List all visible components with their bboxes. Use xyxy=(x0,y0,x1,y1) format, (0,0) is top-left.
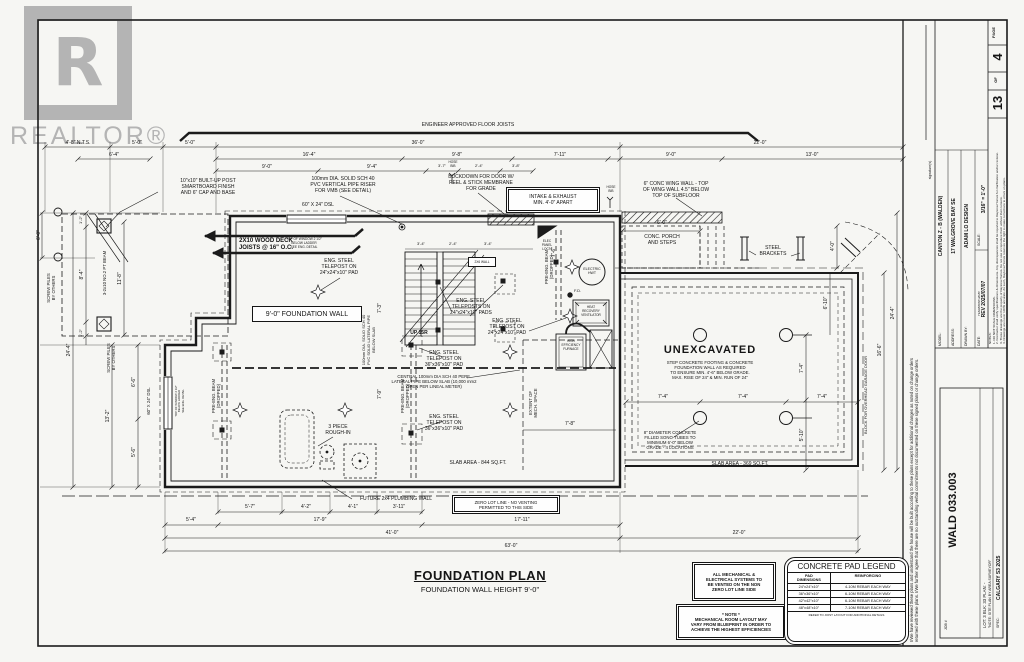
general-notes: NOTES: 1. DO NOT SCALE DIMENSIONS. 2. Co… xyxy=(989,122,1007,344)
legend-cell: 7-10M REBAR EACH WAY xyxy=(831,605,905,611)
dim-label: 5'-4" xyxy=(171,517,211,523)
dim-label: 7'-4" xyxy=(802,394,842,400)
wall-2x6-label: 2X6 WALL xyxy=(474,260,489,264)
foundation-wall-label: 9'-0" FOUNDATION WALL xyxy=(266,311,348,318)
drawn-by-label: DRAWN BY: xyxy=(964,302,968,346)
foundation-wall-box: 9'-0" FOUNDATION WALL xyxy=(252,306,362,322)
dim-label: 7'-8" xyxy=(550,421,590,427)
legend-col2-header: REINFORCING xyxy=(831,573,905,583)
dim-label: 6'-6" xyxy=(131,345,137,419)
sono-tubes-note: 8" DIAMETER CONCRETE FILLED SONO-TUBES T… xyxy=(628,430,712,451)
dim-label: 1'-2" xyxy=(79,323,84,343)
dim-label: 5'-10" xyxy=(799,403,805,467)
window-note-top: TOP OF WINDOW 2 1/2" BELOW LADDER SEE EN… xyxy=(268,238,340,250)
mech-note-inner: * NOTE * MECHANICAL ROOM LAYOUT MAY VARY… xyxy=(678,606,784,638)
dim-label: 16'-4" xyxy=(289,152,329,158)
lot-blk-plan: LOT: 3 BLK: 33 PLAN: - xyxy=(982,393,987,628)
rough-in-note: 3 PIECE ROUGH-IN xyxy=(314,424,362,436)
lateral-pipe-note: 100mm DIA. SOLID SCH 40 PVC SOLID LATERA… xyxy=(362,300,376,380)
built-up-post-note: 10"x10" BUILT-UP POST SMARTBOARD FINISH … xyxy=(160,178,256,196)
dim-label: 4'-0" xyxy=(830,226,836,266)
dim-label: 7'-11" xyxy=(540,152,580,158)
furnace-label: HIGH EFFICIENCY FURNACE xyxy=(557,340,585,352)
zero-lot-note: ZERO LOT LINE - NO VENTING PERMITTED TO … xyxy=(454,497,558,512)
dim-label: 7'-4" xyxy=(723,394,763,400)
page-of-label: OF xyxy=(993,72,998,88)
wing-wall-note: 6" CONC WING WALL - TOP OF WING WALL 4.5… xyxy=(620,181,732,199)
step-footing-note: STEP CONCRETE FOOTING & CONCRETE FOUNDAT… xyxy=(636,360,784,381)
model-label: MODEL: xyxy=(938,302,942,346)
unexcavated-label: UNEXCAVATED xyxy=(645,344,775,357)
dim-label: 5'-6" xyxy=(131,419,137,485)
scale-value: 3/16" = 1'-0" xyxy=(981,156,987,242)
dim-label: 13'-0" xyxy=(792,152,832,158)
slab-area-main: SLAB AREA - 844 SQ.FT. xyxy=(428,460,528,466)
job-number: WALD 033.003 xyxy=(947,395,959,625)
steel-brackets-note: STEEL BRACKETS xyxy=(751,245,795,257)
dim-label: 22'-0" xyxy=(740,140,780,146)
rough-in-fixtures xyxy=(280,410,376,478)
beam-note: PRE-ENG. BEAM (DROPPED) xyxy=(400,360,410,432)
dim-label: 7'-6" xyxy=(551,224,557,280)
dim-label: 11'-8" xyxy=(117,222,123,335)
teleposts-24-note: ENG. STEEL TELEPOSTS ON 24"x24"x10" PADS xyxy=(430,298,512,316)
screw-piles-note: SCREW PILES BY OTHERS xyxy=(46,264,56,312)
spec-label: SPEC: xyxy=(996,604,1000,628)
dim-label: 2'-4" xyxy=(464,164,494,169)
dim-label: 17'-11" xyxy=(501,517,543,523)
dim-label: 4'-8" N.T.S. xyxy=(57,140,99,146)
up-15r-label: UP 15R xyxy=(404,330,434,336)
dim-label: 9'-0" xyxy=(247,164,287,170)
legend-cell: 6-10M REBAR EACH WAY xyxy=(831,598,905,604)
window-note-left: TOP OF WINDOW 2 1/2" BELOW LADDER SEE EN… xyxy=(175,372,185,430)
dim-label: 6'-0" xyxy=(36,214,42,256)
dim-label: 17'-9" xyxy=(300,517,340,523)
dim-label: 7'-9" xyxy=(377,366,383,422)
legend-cell: 6-10M REBAR EACH WAY xyxy=(831,591,905,597)
disclaimer-text: I/We have reviewed these plans and under… xyxy=(909,342,920,642)
telepost-24-note: ENG. STEEL TELEPOST ON 24"x24"x10" PAD xyxy=(468,318,546,336)
porch-dim-label: 6'-0" xyxy=(646,220,678,226)
dim-label: 9'-8" xyxy=(437,152,477,158)
legend-row: 36"x36"x10"6-10M REBAR EACH WAY xyxy=(788,591,905,598)
wall-2x6-box: 2X6 WALL xyxy=(468,257,496,267)
dim-label: 7'-4" xyxy=(643,394,683,400)
dim-label: 3'-4" xyxy=(478,242,498,247)
dim-label: 6'-10" xyxy=(823,274,829,332)
dim-label: 9'-0" xyxy=(651,152,691,158)
dsl-left-label: 60" X 24" DSL xyxy=(146,374,151,428)
dim-label: 24'-4" xyxy=(66,213,72,487)
drawing-title: FOUNDATION PLAN xyxy=(395,568,565,584)
concrete-pad-legend: CONCRETE PAD LEGEND PAD DIMENSIONSREINFO… xyxy=(784,557,909,645)
hatched-elements xyxy=(488,212,722,225)
dim-label: 5'-0" xyxy=(117,140,157,146)
pvc-riser-note: 100mm DIA. SOLID SCH 40 PVC VERTICAL PIP… xyxy=(288,176,398,194)
telepost-36-note: ENG. STEEL TELEPOST ON 36"x36"x10" PAD xyxy=(405,350,483,368)
floor-drain-label: F.D. xyxy=(574,289,590,294)
blueprint-sheet: R REALTOR® xyxy=(0,0,1024,662)
date-value: REV 2025/07/07 xyxy=(981,254,987,344)
mech-note-box: * NOTE * MECHANICAL ROOM LAYOUT MAY VARY… xyxy=(676,604,786,640)
hose-bib-label: HOSE BIB xyxy=(600,186,622,194)
legend-cell: 48"x48"x10" xyxy=(788,605,831,611)
legend-cell: 4-10M REBAR EACH WAY xyxy=(831,584,905,590)
dim-label: 1'-2" xyxy=(79,211,84,229)
extent-mech-note: EXTENT OF MECH. SPACE xyxy=(528,372,538,434)
dim-label: 7'-3" xyxy=(377,280,383,336)
legend-row: 48"x48"x10"7-10M REBAR EACH WAY xyxy=(788,605,905,612)
legend-cell: 24"x24"x10" xyxy=(788,584,831,590)
legend-footer: REFER TO JOIST LAYOUT FOR ADDITIONAL DET… xyxy=(788,612,905,618)
model-value: CANYON Z - B (WALDEN) xyxy=(938,152,944,300)
legend-row: 24"x24"x10"4-10M REBAR EACH WAY xyxy=(788,584,905,591)
legend-title: CONCRETE PAD LEGEND xyxy=(788,561,905,573)
dim-label: 5'-7" xyxy=(230,504,270,510)
page-number: 4 xyxy=(990,45,1005,69)
porch-steps xyxy=(622,226,760,268)
legend-col1-header: PAD DIMENSIONS xyxy=(788,573,831,583)
joist-span-arrow xyxy=(180,133,758,141)
slab-area-garage: SLAB AREA - 369 SQ.FT. xyxy=(695,461,785,467)
vent-note: ALL MECHANICAL & ELECTRICAL SYSTEMS TO B… xyxy=(694,564,774,599)
dim-label: 8'-4" xyxy=(79,229,85,320)
porch-note: CONC. PORCH AND STEPS xyxy=(632,234,692,246)
spec-value: CALGARY S3 2025 xyxy=(996,400,1002,600)
dim-label: 9'-4" xyxy=(352,164,392,170)
dim-label: 2'-4" xyxy=(443,242,463,247)
future-wall-note: FUTURE 2x4 PLUMBING WALL xyxy=(340,496,452,502)
drawing-subtitle: FOUNDATION WALL HEIGHT 9'-0" xyxy=(395,585,565,594)
dim-label: 3'-4" xyxy=(411,242,431,247)
telepost-36-note: ENG. STEEL TELEPOST ON 36"x36"x10" PAD xyxy=(405,414,483,432)
dim-label: 16'-6" xyxy=(877,280,883,420)
intake-exhaust-box: INTAKE & EXHAUST MIN. 4'-0" APART xyxy=(506,187,600,213)
dim-label: 3'-11" xyxy=(379,504,419,510)
hrv-label: HEAT RECOVERY VENTILATOR xyxy=(572,306,610,318)
dim-label: 36'-0" xyxy=(398,140,438,146)
address-label: ADDRESS: xyxy=(951,302,955,346)
dim-label: 3'-7" xyxy=(427,164,457,169)
dim-label: 3'-8" xyxy=(501,164,531,169)
site-plan-note: "NOTE: SITE PLAN BY AREA SURVEYOR" xyxy=(988,393,992,628)
address-value: 17 WALGROVE BAY SE xyxy=(951,152,957,300)
dim-label: 24'-4" xyxy=(890,218,896,408)
drawn-by-value: ADAM LO DESIGN xyxy=(964,152,970,300)
zero-lot-box: ZERO LOT LINE - NO VENTING PERMITTED TO … xyxy=(452,495,560,514)
page-label: PAGE xyxy=(991,22,996,43)
legend-cell: 42"x42"x10" xyxy=(788,598,831,604)
dim-label: 41'-0" xyxy=(372,530,412,536)
dim-label: 13'-2" xyxy=(105,345,111,487)
dim-label: 4'-2" xyxy=(286,504,326,510)
dim-label: 22'-0" xyxy=(719,530,759,536)
dsl-top-label: 60" X 24" DSL xyxy=(288,202,348,208)
intake-exhaust-note: INTAKE & EXHAUST MIN. 4'-0" APART xyxy=(508,189,598,211)
mech-note-body: MECHANICAL ROOM LAYOUT MAY VARY FROM BLU… xyxy=(691,617,771,632)
pt-beam-note: 3-2x10 NO.2 PT BEAM xyxy=(102,241,107,305)
block-garage-door-note: BLOCK FOR OVERHEAD GARAGE DOOR xyxy=(864,320,869,470)
vent-note-box: ALL MECHANICAL & ELECTRICAL SYSTEMS TO B… xyxy=(692,562,776,601)
signature-label: signature(s) xyxy=(928,150,932,190)
electric-hwt-label: ELECTRIC HWT xyxy=(578,267,606,275)
beam-note: PRE-ENG. BEAM (DROPPED) xyxy=(211,360,221,432)
dim-label: 63'-0" xyxy=(491,543,531,549)
joist-span-note: ENGINEER APPROVED FLOOR JOISTS xyxy=(388,122,548,128)
dim-label: 4'-1" xyxy=(333,504,373,510)
legend-row: 42"x42"x10"6-10M REBAR EACH WAY xyxy=(788,598,905,605)
telepost-24-note: ENG. STEEL TELEPOST ON 24"x24"x10" PAD xyxy=(300,258,378,276)
dim-label: 7'-4" xyxy=(799,338,805,398)
legend-cell: 36"x36"x10" xyxy=(788,591,831,597)
page-total: 13 xyxy=(990,90,1005,116)
dim-label: 6'-4" xyxy=(94,152,134,158)
central-pipe-note: CENTRAL 100mm DIA SCH 40 PERF. LATERAL P… xyxy=(368,374,500,389)
dim-label: 5'-0" xyxy=(170,140,210,146)
